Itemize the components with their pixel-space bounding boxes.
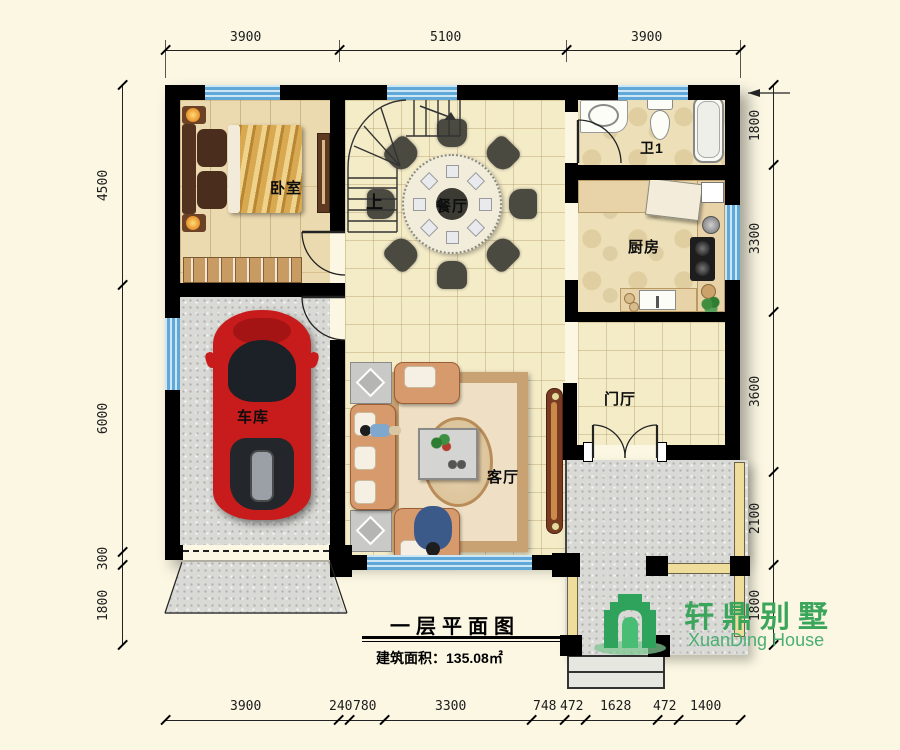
- corner-table-top: [350, 362, 392, 404]
- plate: [446, 231, 459, 244]
- wall-garage-right: [330, 340, 345, 545]
- wall-kitchen-bottom: [565, 312, 740, 322]
- column-porch-ne: [730, 556, 750, 576]
- label-bath: 卫1: [640, 138, 664, 158]
- window-kitchen-right: [725, 205, 740, 280]
- dining-chair: [509, 189, 537, 219]
- kitchen-dish-2: [629, 302, 639, 312]
- nightstand-lamp-top: [186, 108, 200, 122]
- bedroom-dresser-handle: [322, 140, 325, 204]
- dim-top-2: 5100: [430, 30, 461, 45]
- dim-bottom-6: 472: [560, 699, 583, 714]
- dim-line-left: [122, 85, 123, 645]
- dim-line-right: [773, 85, 774, 645]
- dim-bottom-5: 748: [533, 699, 556, 714]
- person-torso: [370, 424, 390, 437]
- entry-door-frame-left: [583, 442, 593, 462]
- tv-cabinet-inlay: [551, 402, 557, 520]
- dim-bottom-7: 1628: [600, 699, 631, 714]
- dim-top-3: 3900: [631, 30, 662, 45]
- tv-cabinet-knob-bottom: [551, 522, 560, 531]
- sofa-pillow-3: [354, 480, 376, 504]
- dim-line-top: [165, 50, 740, 51]
- dim-left-2: 6000: [96, 403, 111, 434]
- dim-bottom-2: 240: [329, 699, 352, 714]
- column-porch-nw: [552, 553, 580, 577]
- dim-bottom-8: 472: [653, 699, 676, 714]
- kitchen-wall-cabinet: [701, 182, 724, 203]
- label-garage: 车库: [237, 406, 269, 427]
- bathtub-inner: [697, 101, 720, 158]
- wall-bedroom-garage: [165, 283, 345, 297]
- logo-house-icon: [592, 580, 668, 660]
- wall-garage-bottom-a: [165, 545, 183, 560]
- armchair-top-pillow: [404, 366, 436, 388]
- label-stairs-up: 上: [366, 188, 384, 213]
- dim-left-4: 1800: [96, 590, 111, 621]
- stove-burner-2: [695, 261, 710, 276]
- sofa-pillow-2: [354, 446, 376, 470]
- kitchen-hood: [645, 178, 703, 221]
- column-living-sw: [330, 545, 352, 577]
- coffee-table-cups: [448, 460, 466, 469]
- dining-chair: [437, 261, 467, 289]
- label-kitchen: 厨房: [628, 236, 660, 257]
- bed-pillow-1: [197, 129, 227, 167]
- building-area-label: 建筑面积：135.08㎡: [376, 648, 503, 668]
- coffee-table-plant: [430, 434, 452, 452]
- dim-right-1: 1800: [748, 110, 763, 141]
- car-windshield-cabin: [228, 340, 296, 402]
- window-garage-left: [165, 318, 180, 390]
- wall-bath-left-a: [565, 100, 578, 112]
- dim-left-3: 300: [96, 547, 111, 570]
- dim-left-1: 4500: [96, 170, 111, 201]
- label-living: 客厅: [487, 466, 519, 487]
- porch-step-line: [567, 671, 665, 673]
- bed-pillow-2: [197, 171, 227, 209]
- foyer-floor: [578, 322, 725, 445]
- dim-ext: [740, 40, 741, 78]
- dim-right-4: 2100: [748, 503, 763, 534]
- bed-sheet-fold: [228, 125, 240, 213]
- kitchen-sink-faucet: [656, 296, 659, 308]
- window-bedroom-top: [205, 85, 280, 100]
- label-dining: 餐厅: [436, 195, 468, 216]
- column-porch-n: [646, 556, 668, 576]
- driveway: [160, 560, 352, 616]
- bed-headboard: [182, 124, 196, 214]
- title-underline-thick: [362, 636, 572, 639]
- nightstand-lamp-bottom: [186, 216, 200, 230]
- bath-sink-basin: [588, 104, 619, 127]
- wall-porch-top-b: [667, 445, 740, 460]
- floor-plan: 卧室 餐厅 卫1 厨房 车库 客厅 门厅 上 3900 5100 3900 45…: [0, 0, 900, 750]
- title-underline-thin: [362, 641, 572, 642]
- porch-trim-left: [567, 576, 578, 638]
- dim-right-3: 3600: [748, 376, 763, 407]
- wardrobe: [183, 257, 302, 283]
- dim-bottom-3: 780: [353, 699, 376, 714]
- wall-porch-top-a: [565, 445, 583, 460]
- kitchen-pot: [702, 216, 720, 234]
- corner-table-bottom: [350, 510, 392, 552]
- car-engine-block: [250, 450, 274, 502]
- dim-top-1: 3900: [230, 30, 261, 45]
- dim-ext: [165, 40, 166, 78]
- person-head: [426, 542, 440, 556]
- window-bath-top: [618, 85, 688, 100]
- dim-bottom-9: 1400: [690, 699, 721, 714]
- plate: [413, 198, 426, 211]
- logo-text-en: XuanDing House: [688, 630, 824, 651]
- dim-bottom-1: 3900: [230, 699, 261, 714]
- window-living-bottom: [367, 555, 532, 570]
- stove-burner-1: [695, 241, 710, 256]
- logo: 轩鼎别墅 XuanDing House: [592, 580, 892, 670]
- dim-bottom-4: 3300: [435, 699, 466, 714]
- entry-door-frame-right: [657, 442, 667, 462]
- plate: [446, 165, 459, 178]
- window-dining-top: [387, 85, 457, 100]
- tv-cabinet-knob-top: [551, 392, 560, 401]
- dim-right-2: 3300: [748, 223, 763, 254]
- plate: [479, 198, 492, 211]
- wall-bedroom-right-a: [330, 100, 345, 232]
- wall-bath-kitchen: [565, 165, 740, 180]
- label-foyer: 门厅: [604, 388, 636, 409]
- person-legs: [389, 426, 401, 435]
- dining-chair: [437, 119, 467, 147]
- label-bedroom: 卧室: [270, 177, 302, 198]
- porch-trim-top: [667, 563, 731, 574]
- plan-title: 一层平面图: [390, 610, 520, 639]
- person-lying: [360, 422, 400, 438]
- garage-door-dashed-line: [183, 550, 329, 552]
- wall-right: [725, 100, 740, 460]
